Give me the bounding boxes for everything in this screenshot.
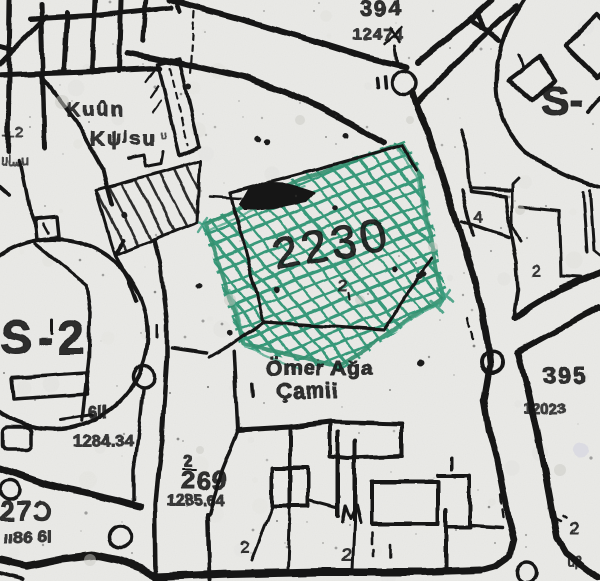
svg-text:6ll: 6ll <box>88 402 108 422</box>
svg-text:395: 395 <box>542 363 588 390</box>
svg-text:ŭβ: ŭβ <box>567 553 583 569</box>
svg-text:12023: 12023 <box>524 400 566 417</box>
svg-text:2: 2 <box>338 276 347 295</box>
svg-text:Çamii: Çamii <box>277 380 339 403</box>
svg-text:394: 394 <box>360 0 403 21</box>
svg-text:12474: 12474 <box>352 25 404 44</box>
svg-text:ıı86 6l: ıı86 6l <box>4 528 51 547</box>
svg-text:27Ɔ: 27Ɔ <box>0 496 54 526</box>
svg-text:S-2: S-2 <box>0 312 90 365</box>
svg-text:2: 2 <box>532 263 541 280</box>
svg-text:2: 2 <box>342 545 351 564</box>
svg-text:⊥2: ⊥2 <box>2 123 23 140</box>
svg-text:u: u <box>160 129 166 141</box>
svg-text:uساu: uساu <box>0 153 29 168</box>
svg-text:Kψʲsu: Kψʲsu <box>90 128 157 150</box>
svg-text:S-: S- <box>541 77 583 124</box>
svg-text:2: 2 <box>569 519 578 538</box>
svg-text:Kuûn: Kuûn <box>66 99 125 121</box>
svg-text:4: 4 <box>474 209 483 226</box>
